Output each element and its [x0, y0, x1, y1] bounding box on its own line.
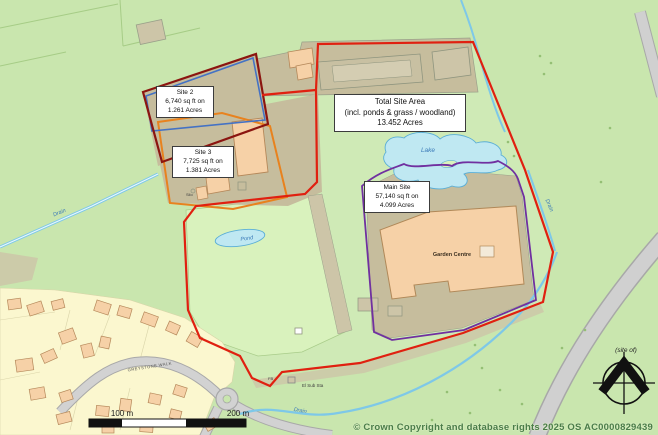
site3-acres: 1.381 Acres — [175, 167, 231, 176]
el-sub-sta-label: El Sub Sta — [302, 383, 324, 388]
tree-mark — [446, 391, 449, 394]
el-sub-sta-building — [288, 377, 295, 383]
tree-mark — [609, 127, 612, 130]
site-plan-map: Lake Pond Drain Drain Drain Garden Centr… — [0, 0, 658, 435]
site2-annotation: Site 2 6,740 sq ft on 1.261 Acres — [156, 86, 214, 118]
tree-mark — [550, 62, 553, 65]
house — [148, 393, 162, 405]
outbuilding — [388, 306, 402, 316]
site2-sqft: 6,740 sq ft on — [159, 98, 211, 107]
tree-mark — [481, 367, 484, 370]
tree-mark — [584, 329, 587, 332]
tree-mark — [507, 141, 510, 144]
main-site-sqft: 57,140 sq ft on — [367, 193, 427, 202]
site3-annotation: Site 3 7,725 sq ft on 1.381 Acres — [172, 146, 234, 178]
house — [7, 298, 21, 310]
garden-centre-label: Garden Centre — [433, 252, 471, 258]
tree-mark — [561, 347, 564, 350]
garden-centre-annex — [480, 246, 494, 257]
house — [15, 358, 34, 372]
map-canvas: Lake Pond Drain Drain Drain Garden Centr… — [0, 0, 658, 435]
scale-100m-label: 100 m — [111, 409, 134, 418]
scale-bar-segment — [186, 419, 246, 427]
tree-mark — [513, 155, 516, 158]
fb-label: FB — [268, 376, 273, 381]
tree-mark — [474, 344, 477, 347]
scale-200m-label: 200 m — [227, 409, 250, 418]
lake-label: Lake — [421, 147, 435, 154]
main-site-title: Main Site — [367, 184, 427, 193]
total-site-acres: 13.452 Acres — [337, 118, 463, 129]
farm-building — [296, 63, 313, 80]
site-of-label: (site of) — [615, 347, 637, 354]
house — [96, 405, 110, 416]
main-site-annotation: Main Site 57,140 sq ft on 4.099 Acres — [364, 181, 430, 213]
site2-acres: 1.261 Acres — [159, 107, 211, 116]
farm-building — [196, 186, 208, 200]
tree-mark — [543, 73, 546, 76]
silo-label: Silo — [186, 192, 193, 197]
main-site-acres: 4.099 Acres — [367, 202, 427, 211]
tree-mark — [499, 389, 502, 392]
total-site-annotation: Total Site Area (incl. ponds & grass / w… — [334, 94, 466, 132]
scale-bar-segment — [89, 419, 122, 427]
total-site-title: Total Site Area — [337, 97, 463, 108]
house — [29, 387, 46, 400]
roundabout-island — [223, 395, 231, 403]
paddock-hut — [295, 328, 302, 334]
site2-title: Site 2 — [159, 89, 211, 98]
copyright-attribution: © Crown Copyright and database rights 20… — [353, 422, 653, 433]
tree-mark — [521, 403, 524, 406]
farm-shed — [432, 47, 471, 80]
outbuilding — [358, 298, 378, 311]
site3-sqft: 7,725 sq ft on — [175, 158, 231, 167]
total-site-detail: (incl. ponds & grass / woodland) — [337, 108, 463, 119]
tree-mark — [539, 55, 542, 58]
tree-mark — [600, 181, 603, 184]
house — [99, 336, 111, 349]
site3-title: Site 3 — [175, 149, 231, 158]
tree-mark — [431, 419, 434, 422]
tree-mark — [469, 412, 472, 415]
